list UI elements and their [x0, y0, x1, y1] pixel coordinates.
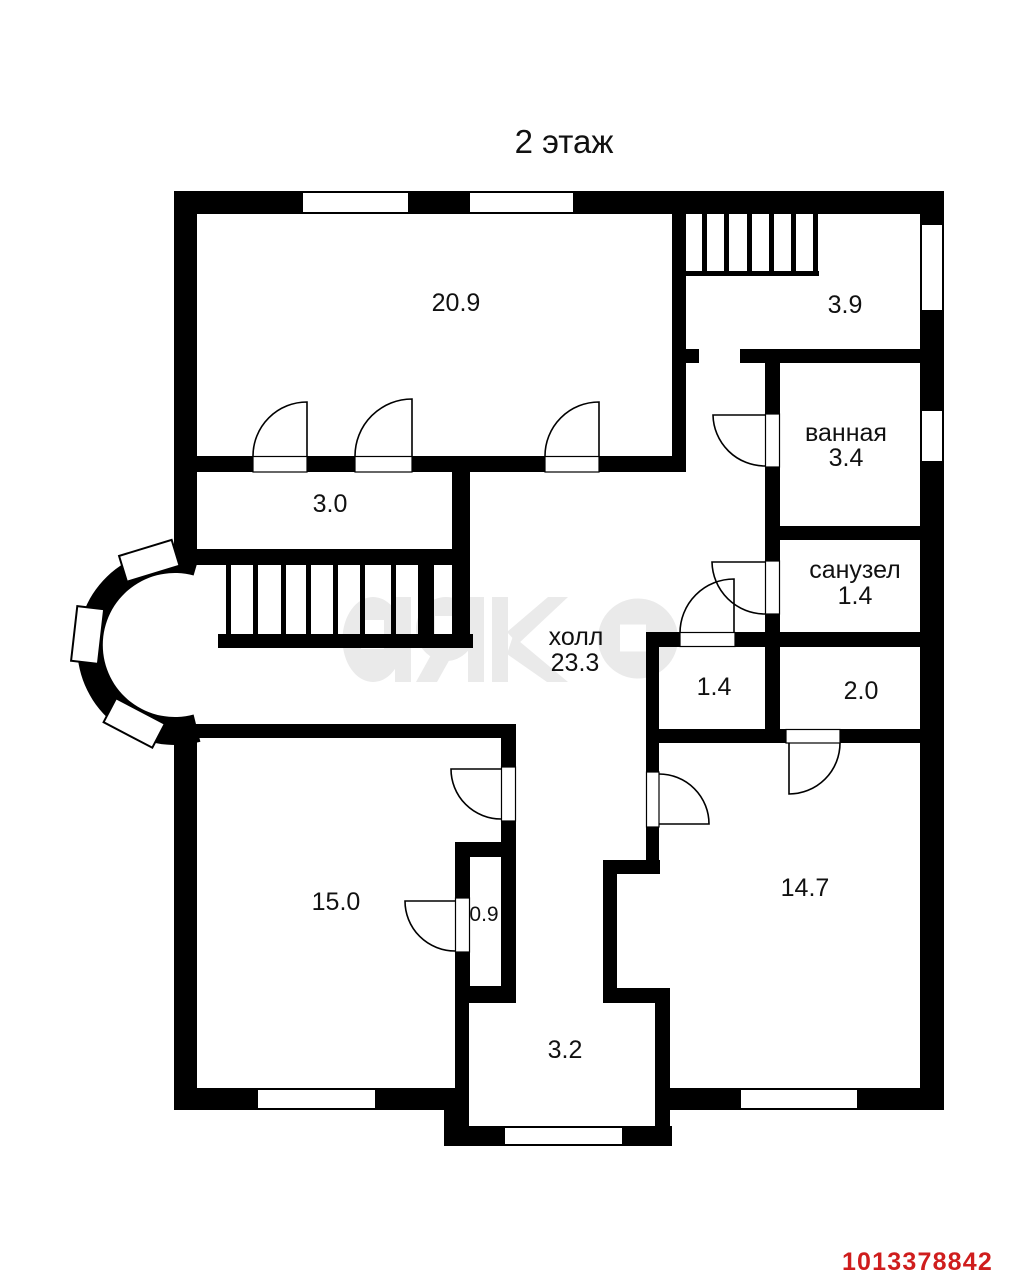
svg-text:1.4: 1.4: [697, 673, 732, 701]
svg-text:санузел: санузел: [809, 556, 901, 584]
svg-text:20.9: 20.9: [432, 289, 481, 317]
svg-text:14.7: 14.7: [781, 874, 830, 902]
svg-text:3.2: 3.2: [548, 1036, 583, 1064]
svg-text:3.4: 3.4: [829, 444, 864, 472]
svg-text:0.9: 0.9: [469, 903, 498, 926]
svg-text:2 этаж: 2 этаж: [515, 123, 614, 160]
svg-text:23.3: 23.3: [551, 649, 600, 677]
svg-text:ванная: ванная: [805, 419, 887, 447]
svg-text:1.4: 1.4: [838, 582, 873, 610]
svg-text:холл: холл: [549, 623, 604, 651]
svg-text:3.9: 3.9: [828, 291, 863, 319]
svg-text:3.0: 3.0: [313, 490, 348, 518]
svg-text:2.0: 2.0: [844, 677, 879, 705]
svg-text:1013378842: 1013378842: [842, 1248, 993, 1276]
svg-text:15.0: 15.0: [312, 888, 361, 916]
